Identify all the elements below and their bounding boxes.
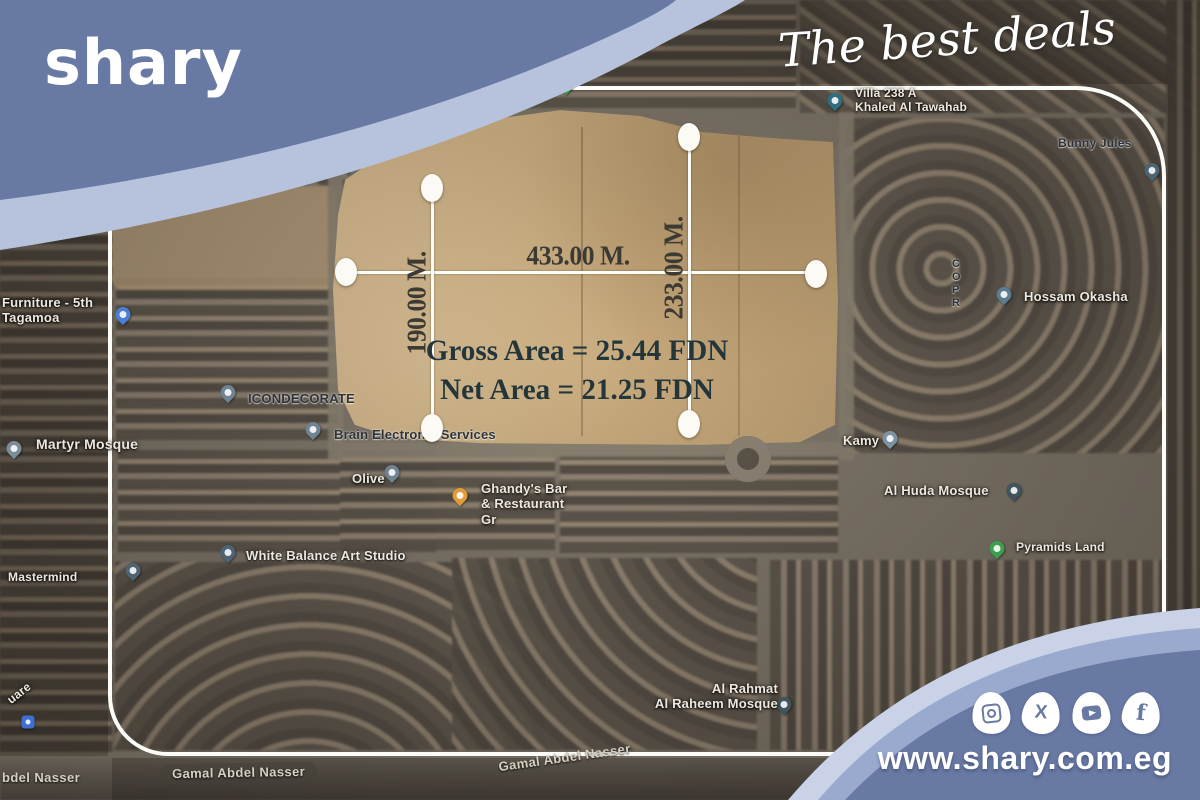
measure-endpoint-dot	[421, 414, 443, 442]
youtube-icon[interactable]	[1070, 690, 1112, 736]
instagram-glyph	[981, 703, 1002, 724]
measure-endpoint-dot	[335, 258, 357, 286]
net-area-label: Net Area = 21.25 FDN	[440, 373, 714, 407]
measure-endpoint-dot	[678, 123, 700, 151]
facebook-icon[interactable]: f	[1120, 690, 1162, 735]
measure-endpoint-dot	[678, 410, 700, 438]
website-url[interactable]: www.shary.com.eg	[878, 740, 1172, 777]
shary-logo[interactable]: shary	[44, 26, 243, 99]
youtube-glyph	[1081, 705, 1101, 721]
instagram-icon[interactable]	[970, 690, 1012, 736]
measure-endpoint-dot	[421, 174, 443, 202]
measure-endpoint-dot	[805, 260, 827, 288]
measurement-overlay: 433.00 M. 190.00 M. 233.00 M. Gross Area…	[0, 0, 1200, 800]
facebook-glyph: f	[1135, 700, 1147, 727]
x-twitter-icon[interactable]: X	[1020, 690, 1062, 735]
gross-area-label: Gross Area = 25.44 FDN	[426, 334, 728, 368]
social-icons-row: X f	[972, 692, 1160, 734]
flyer-canvas: Furniture - 5th TagamoaMartyr MosqueICON…	[0, 0, 1200, 800]
plot-right-height-label: 233.00 M.	[659, 216, 690, 319]
plot-width-label: 433.00 M.	[526, 241, 629, 272]
x-glyph: X	[1034, 701, 1049, 724]
